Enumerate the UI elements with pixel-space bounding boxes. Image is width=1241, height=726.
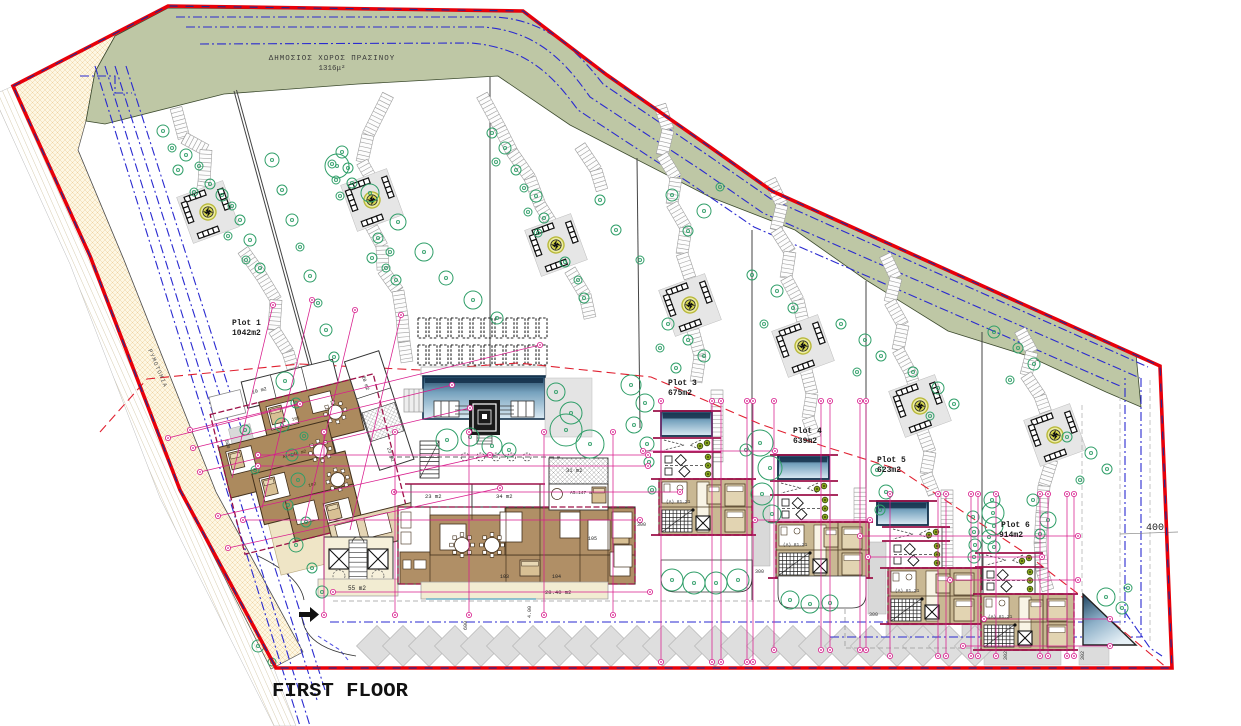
svg-text:1042m2: 1042m2 [232,329,261,338]
svg-text:Plot 6: Plot 6 [1001,521,1030,530]
svg-text:FIRST FLOOR: FIRST FLOOR [272,680,409,702]
svg-text:31 m2: 31 m2 [566,467,583,474]
svg-text:(A) 81.21: (A) 81.21 [895,588,920,594]
svg-text:Plot 3: Plot 3 [668,379,697,388]
svg-text:105: 105 [588,536,597,542]
svg-text:914m2: 914m2 [999,531,1023,540]
svg-text:(A) 81.21: (A) 81.21 [666,499,691,505]
svg-text:300: 300 [637,522,646,528]
svg-text:639m2: 639m2 [793,437,817,446]
svg-text:Plot 1: Plot 1 [232,319,261,328]
svg-text:600: 600 [463,621,469,630]
svg-text:23 m2: 23 m2 [425,493,442,500]
svg-text:55 m2: 55 m2 [348,585,366,592]
svg-text:302: 302 [1003,651,1009,660]
svg-text:34 m2: 34 m2 [496,493,513,500]
svg-text:A5=147 m2: A5=147 m2 [570,490,595,496]
svg-text:1316μ²: 1316μ² [318,64,345,73]
svg-text:302: 302 [1080,651,1086,660]
svg-text:28.40 m2: 28.40 m2 [545,589,571,596]
svg-text:623m2: 623m2 [877,466,901,475]
svg-text:Plot 4: Plot 4 [793,427,822,436]
svg-text:4.00: 4.00 [527,606,533,618]
svg-text:675m2: 675m2 [668,389,692,398]
svg-text:300: 300 [755,569,764,575]
svg-text:300: 300 [869,612,878,618]
svg-text:(A) 81.21: (A) 81.21 [783,542,808,548]
svg-text:ΔΗΜΟΣΙΟΣ ΧΩΡΟΣ ΠΡΑΣΙΝΟΥ: ΔΗΜΟΣΙΟΣ ΧΩΡΟΣ ΠΡΑΣΙΝΟΥ [269,55,396,63]
svg-text:103: 103 [500,574,509,580]
svg-text:104: 104 [552,574,561,580]
svg-text:Plot 5: Plot 5 [877,456,906,465]
